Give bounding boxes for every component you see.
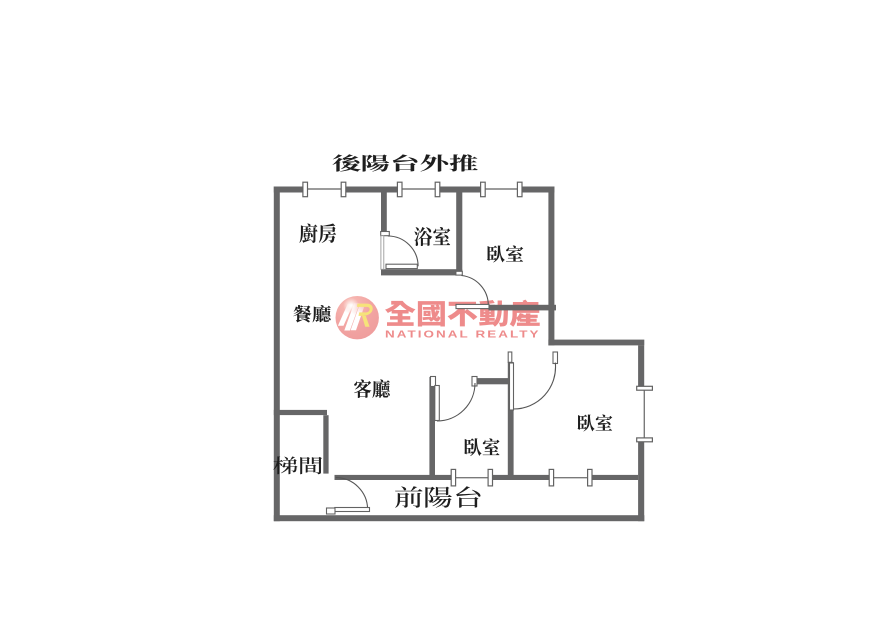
svg-text:NATIONAL REALTY: NATIONAL REALTY [385,330,541,341]
